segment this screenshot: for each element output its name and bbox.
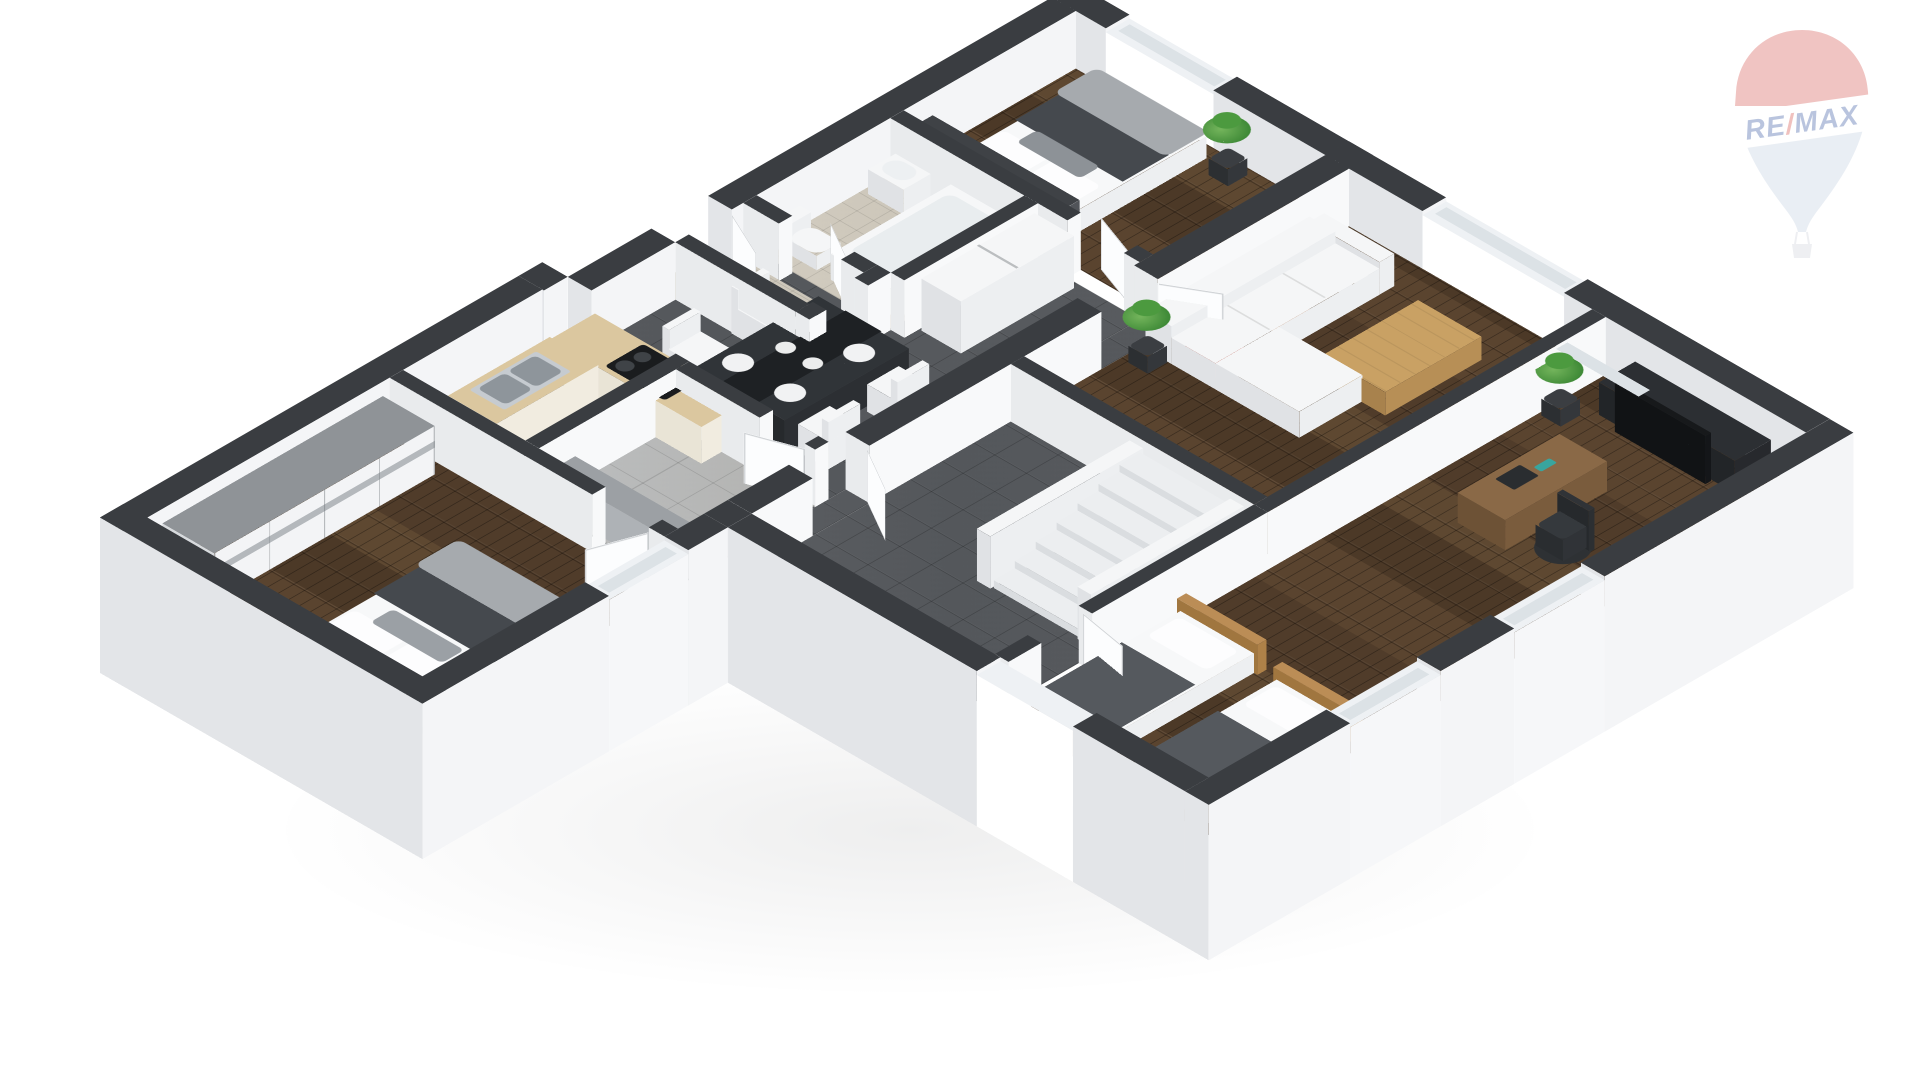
plan-3d: [100, 575, 101, 576]
balloon-basket: [1792, 244, 1812, 258]
balloon-ropes: [1795, 232, 1809, 244]
wall-southwest-b-south: [688, 527, 728, 705]
tv-panel-south: [1705, 433, 1711, 485]
chair-n2-back-west: [731, 286, 738, 337]
bed-br1-headboard-south: [1257, 640, 1266, 675]
wall-west-main-south: [422, 690, 446, 859]
balloon-top: [1735, 30, 1869, 106]
iw-storage-east-b-south: [815, 442, 829, 507]
iw-bl-east-a-south: [592, 487, 606, 552]
iw-vestibule-east-a-south: [779, 216, 793, 281]
iw-bath-south-west: [891, 273, 905, 338]
remax-balloon-watermark: RE/MAX: [1722, 26, 1882, 262]
wall-south-wing-a-west: [1185, 791, 1209, 960]
floorplan-scene: RE/MAX: [0, 0, 1920, 1080]
stair-stringer-north-west: [977, 529, 991, 589]
office-chair-back-south: [1589, 508, 1595, 553]
